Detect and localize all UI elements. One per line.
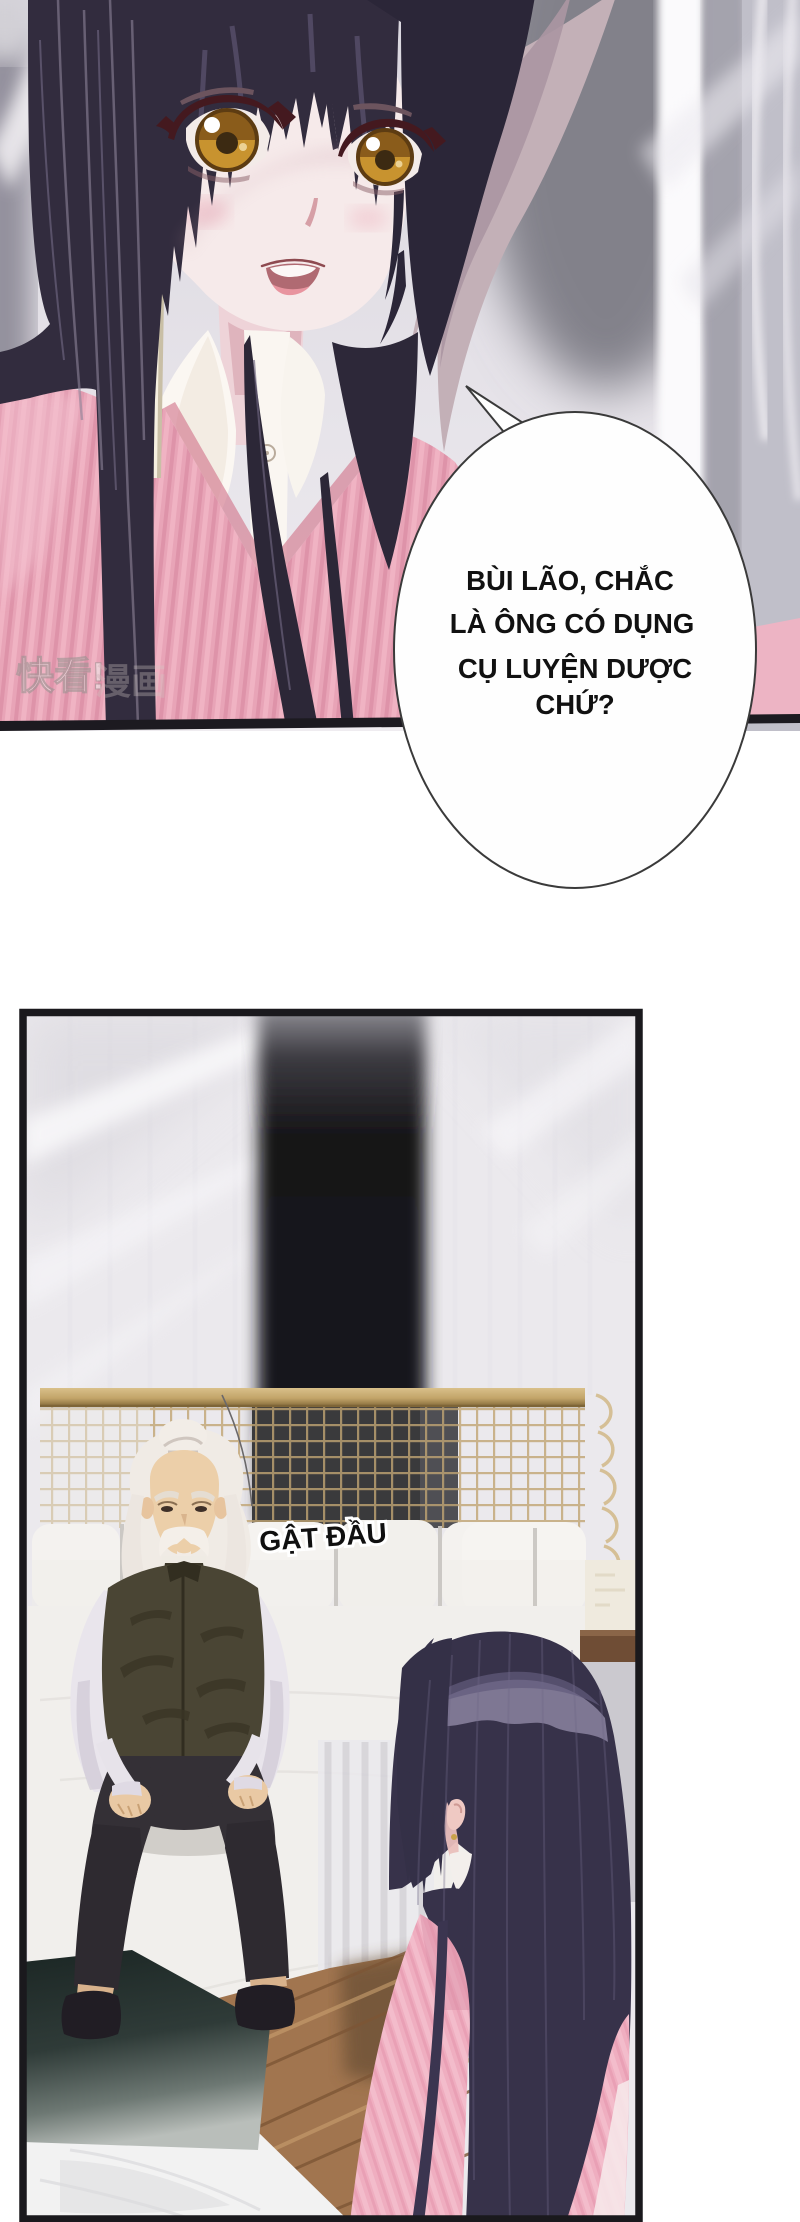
svg-text:CHỨ?: CHỨ?	[535, 689, 614, 720]
svg-text:快看!: 快看!	[16, 656, 105, 698]
svg-text:LÀ ÔNG CÓ DỤNG: LÀ ÔNG CÓ DỤNG	[450, 607, 694, 639]
svg-text:CỤ LUYỆN DƯỢC: CỤ LUYỆN DƯỢC	[458, 653, 692, 684]
svg-text:BÙI LÃO, CHẮC: BÙI LÃO, CHẮC	[466, 565, 674, 596]
svg-text:漫画: 漫画	[95, 661, 167, 702]
